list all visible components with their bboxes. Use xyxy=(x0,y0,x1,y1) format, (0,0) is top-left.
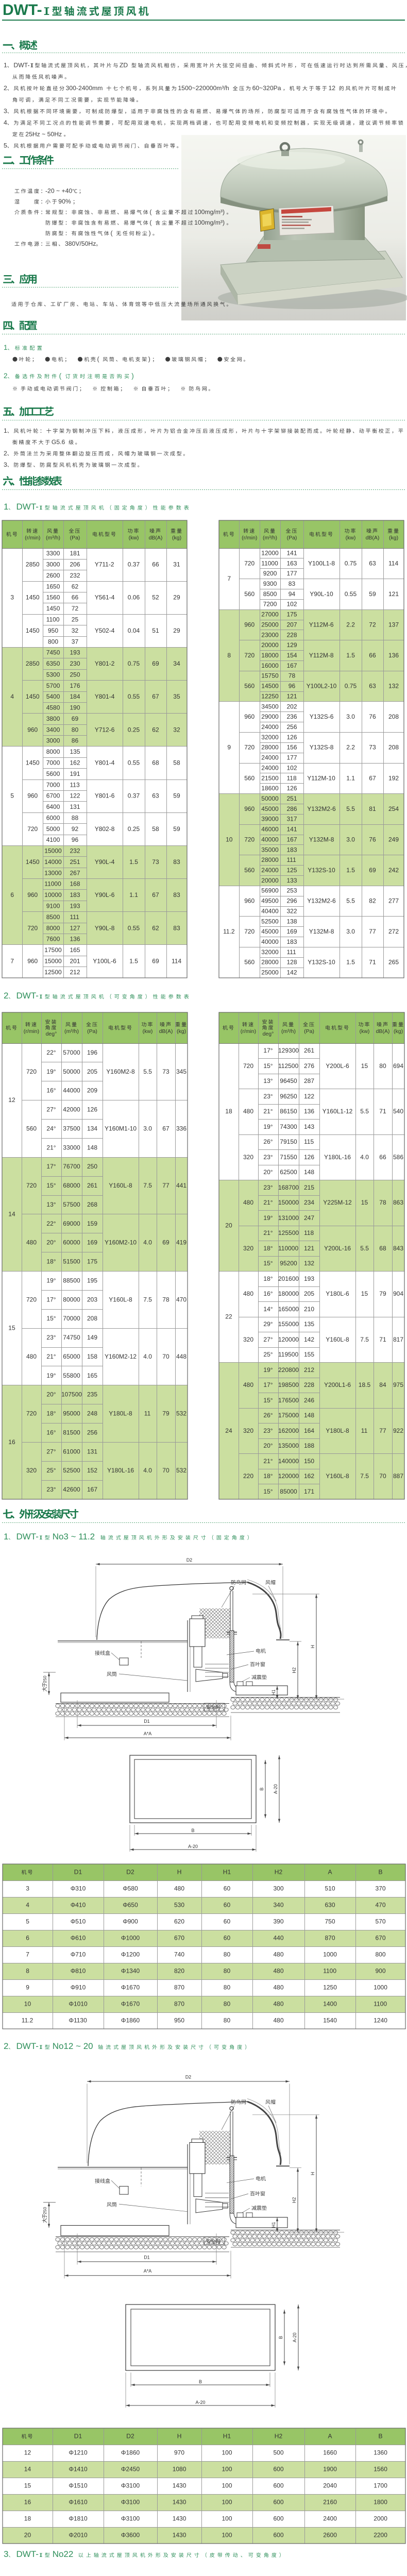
svg-text:15750: 15750 xyxy=(261,672,279,680)
svg-text:560: 560 xyxy=(244,959,255,966)
svg-text:Φ1410: Φ1410 xyxy=(69,2466,88,2473)
svg-text:1100: 1100 xyxy=(323,1968,336,1975)
svg-text:0.37: 0.37 xyxy=(128,561,140,568)
svg-text:1560: 1560 xyxy=(46,594,60,601)
svg-text:209: 209 xyxy=(87,1087,97,1094)
svg-text:Φ1670: Φ1670 xyxy=(121,1984,140,1991)
svg-text:191: 191 xyxy=(70,770,80,777)
svg-text:11.2: 11.2 xyxy=(223,928,235,935)
svg-text:21°: 21° xyxy=(263,1199,273,1206)
svg-text:2: 2 xyxy=(4,991,8,1001)
svg-text:132: 132 xyxy=(304,1260,314,1267)
svg-text:720: 720 xyxy=(243,1062,253,1070)
svg-text:3800: 3800 xyxy=(46,715,60,722)
svg-text:17°: 17° xyxy=(46,1296,56,1303)
svg-text:76700: 76700 xyxy=(63,1163,80,1170)
svg-text:45000: 45000 xyxy=(261,928,279,935)
svg-text:5400: 5400 xyxy=(46,693,60,700)
svg-text:7600: 7600 xyxy=(46,936,60,943)
svg-text:69: 69 xyxy=(152,957,159,964)
svg-text:71: 71 xyxy=(369,959,376,966)
svg-text:5.5: 5.5 xyxy=(360,1108,369,1115)
svg-text:720: 720 xyxy=(26,1068,37,1075)
svg-text:248: 248 xyxy=(87,1410,97,1417)
svg-text:4.0: 4.0 xyxy=(360,1154,369,1161)
svg-text:H2: H2 xyxy=(292,2197,297,2204)
svg-text:80: 80 xyxy=(379,1062,386,1070)
svg-text:208: 208 xyxy=(87,1315,97,1322)
svg-text:70: 70 xyxy=(162,1353,169,1360)
svg-text:62: 62 xyxy=(152,924,159,931)
svg-text:Y200L-6: Y200L-6 xyxy=(326,1062,349,1070)
svg-text:448: 448 xyxy=(176,1353,186,1360)
svg-text:126: 126 xyxy=(304,1154,314,1161)
svg-text:10000: 10000 xyxy=(44,891,62,899)
svg-text:268: 268 xyxy=(87,1201,97,1208)
svg-text:1450: 1450 xyxy=(46,605,60,612)
svg-text:67: 67 xyxy=(162,1125,169,1132)
svg-text:212: 212 xyxy=(70,969,80,976)
svg-text:419: 419 xyxy=(176,1239,186,1246)
svg-text:1660: 1660 xyxy=(323,2449,337,2456)
svg-text:4100: 4100 xyxy=(46,836,60,843)
svg-text:70000: 70000 xyxy=(63,1315,80,1322)
svg-text:131: 131 xyxy=(87,1448,97,1455)
svg-text:12250: 12250 xyxy=(261,692,279,700)
svg-text:207: 207 xyxy=(287,621,297,628)
svg-text:50000: 50000 xyxy=(63,1068,80,1075)
svg-text:180000: 180000 xyxy=(278,1290,299,1297)
svg-text:5300: 5300 xyxy=(46,671,60,678)
svg-text:B: B xyxy=(259,1787,264,1790)
svg-text:80: 80 xyxy=(224,1984,231,1991)
svg-text:Y502-4: Y502-4 xyxy=(95,627,115,634)
svg-text:167: 167 xyxy=(287,662,297,669)
svg-text:102: 102 xyxy=(287,601,297,608)
svg-text:235: 235 xyxy=(87,1391,97,1398)
svg-text:17°: 17° xyxy=(46,1163,56,1170)
svg-text:720: 720 xyxy=(244,928,255,935)
svg-text:540: 540 xyxy=(393,1108,403,1115)
svg-text:70: 70 xyxy=(379,1472,386,1480)
svg-text:115: 115 xyxy=(304,1138,314,1145)
svg-text:3.0: 3.0 xyxy=(143,1125,152,1132)
svg-text:287: 287 xyxy=(304,1077,314,1084)
svg-text:Y180L-16: Y180L-16 xyxy=(324,1154,351,1161)
svg-text:16: 16 xyxy=(24,2499,31,2506)
svg-text:340: 340 xyxy=(274,1902,284,1909)
svg-text:125500: 125500 xyxy=(278,1229,299,1236)
svg-text:0.04: 0.04 xyxy=(128,627,140,634)
svg-text:83: 83 xyxy=(173,924,180,931)
svg-text:78: 78 xyxy=(289,672,296,680)
svg-text:80: 80 xyxy=(224,1968,231,1975)
svg-text:234: 234 xyxy=(304,1199,314,1206)
svg-text:76: 76 xyxy=(369,713,376,720)
svg-text:162: 162 xyxy=(70,759,80,767)
svg-text:Y132M-8: Y132M-8 xyxy=(309,836,334,843)
svg-text:Y160M2-12: Y160M2-12 xyxy=(105,1353,137,1360)
svg-text:Y132S-6: Y132S-6 xyxy=(310,713,334,720)
svg-text:20°: 20° xyxy=(46,1239,56,1246)
svg-text:18°: 18° xyxy=(263,1472,273,1480)
svg-text:92: 92 xyxy=(72,825,79,833)
svg-text:1800: 1800 xyxy=(374,2499,387,2506)
svg-text:148: 148 xyxy=(304,1168,314,1176)
svg-text:Y112M-8: Y112M-8 xyxy=(309,652,334,659)
svg-text:80: 80 xyxy=(224,2001,231,2008)
svg-text:128: 128 xyxy=(287,959,297,966)
svg-text:720: 720 xyxy=(26,1182,37,1189)
svg-text:Φ3600: Φ3600 xyxy=(121,2532,140,2539)
svg-text:126: 126 xyxy=(287,734,297,741)
svg-text:Φ910: Φ910 xyxy=(71,1984,86,1991)
svg-text:(r/min): (r/min) xyxy=(242,535,257,541)
svg-text:25°: 25° xyxy=(46,1467,56,1474)
svg-text:1.5: 1.5 xyxy=(346,652,355,659)
svg-text:320: 320 xyxy=(243,1336,253,1343)
svg-text:12: 12 xyxy=(329,84,336,92)
svg-text:(Pa): (Pa) xyxy=(87,1028,97,1035)
svg-text:39000: 39000 xyxy=(261,816,279,823)
svg-text:122: 122 xyxy=(304,1093,314,1100)
svg-text:Y90L-6: Y90L-6 xyxy=(95,891,115,899)
svg-text:480: 480 xyxy=(174,1885,184,1892)
svg-text:31: 31 xyxy=(173,561,180,568)
svg-text:Φ1130: Φ1130 xyxy=(69,2017,87,2024)
svg-text:720: 720 xyxy=(244,744,255,751)
svg-text:35000: 35000 xyxy=(261,846,279,853)
svg-text:125: 125 xyxy=(287,867,297,874)
svg-text:13°: 13° xyxy=(263,1077,273,1084)
svg-text:60: 60 xyxy=(224,1918,231,1925)
svg-text:820: 820 xyxy=(174,1968,184,1975)
svg-text:(r/min): (r/min) xyxy=(241,1028,256,1035)
svg-text:960: 960 xyxy=(244,621,255,628)
svg-text:480: 480 xyxy=(243,1199,253,1206)
svg-text:67: 67 xyxy=(152,891,159,899)
svg-text:18: 18 xyxy=(24,2515,31,2522)
svg-text:D2: D2 xyxy=(186,1557,193,1563)
svg-text:Φ2010: Φ2010 xyxy=(69,2532,88,2539)
svg-text:23000: 23000 xyxy=(261,631,279,638)
svg-text:0.75: 0.75 xyxy=(345,560,357,567)
svg-text:6: 6 xyxy=(10,891,14,899)
svg-text:320: 320 xyxy=(243,1154,253,1161)
svg-text:27°: 27° xyxy=(46,1106,56,1113)
svg-text:80: 80 xyxy=(72,726,79,733)
svg-text:195: 195 xyxy=(87,1277,97,1284)
svg-text:162: 162 xyxy=(304,1472,314,1480)
svg-text:11000: 11000 xyxy=(44,880,61,888)
svg-text:12: 12 xyxy=(8,1096,15,1104)
svg-text:135: 135 xyxy=(70,748,80,755)
svg-text:21°: 21° xyxy=(46,1144,56,1151)
svg-text:A-20: A-20 xyxy=(273,1784,278,1794)
svg-text:12: 12 xyxy=(24,2449,31,2456)
svg-text:201600: 201600 xyxy=(278,1275,299,1282)
svg-text:210: 210 xyxy=(304,1306,314,1313)
svg-text:100: 100 xyxy=(222,2482,232,2489)
svg-text:Φ1210: Φ1210 xyxy=(69,2449,88,2456)
svg-text:320: 320 xyxy=(26,1467,37,1474)
svg-text:Φ1610: Φ1610 xyxy=(69,2499,88,2506)
svg-text:19°: 19° xyxy=(46,1277,56,1284)
svg-text:8000: 8000 xyxy=(46,748,60,755)
svg-text:208: 208 xyxy=(388,744,399,751)
svg-text:63: 63 xyxy=(152,792,159,800)
svg-text:deg°: deg° xyxy=(263,1031,274,1037)
svg-text:23°: 23° xyxy=(263,1427,273,1434)
svg-text:Y802-8: Y802-8 xyxy=(95,825,115,833)
svg-text:65000: 65000 xyxy=(63,1353,80,1360)
svg-text:206: 206 xyxy=(70,561,80,568)
svg-text:141: 141 xyxy=(287,826,297,833)
svg-text:175: 175 xyxy=(87,1258,97,1265)
svg-text:DWT-: DWT- xyxy=(16,2549,39,2559)
svg-text:532: 532 xyxy=(176,1467,186,1474)
svg-text:251: 251 xyxy=(70,858,80,866)
svg-text:Y112M-6: Y112M-6 xyxy=(309,621,334,628)
svg-text:192: 192 xyxy=(388,774,399,782)
svg-text:22: 22 xyxy=(225,1313,232,1320)
svg-text:2.2: 2.2 xyxy=(346,744,355,751)
svg-text:228: 228 xyxy=(287,631,297,638)
svg-text:183: 183 xyxy=(70,891,80,899)
svg-text:): ) xyxy=(131,372,133,380)
svg-text:122: 122 xyxy=(70,792,80,800)
svg-text:3.0: 3.0 xyxy=(346,928,355,935)
svg-text:5.5: 5.5 xyxy=(346,897,355,905)
svg-text:167: 167 xyxy=(87,1486,97,1493)
svg-text:140000: 140000 xyxy=(278,1458,299,1465)
svg-text:960: 960 xyxy=(27,891,38,899)
svg-text:215: 215 xyxy=(304,1184,314,1191)
svg-text:Y180L-8: Y180L-8 xyxy=(109,1410,132,1417)
svg-text:H1: H1 xyxy=(271,2222,276,2228)
svg-text:129: 129 xyxy=(287,641,297,649)
svg-text:208: 208 xyxy=(388,713,399,720)
svg-text:126: 126 xyxy=(287,785,297,792)
svg-text:136: 136 xyxy=(70,936,80,943)
svg-text:246: 246 xyxy=(304,1397,314,1404)
svg-text:A-20: A-20 xyxy=(196,2400,206,2405)
svg-text:24000: 24000 xyxy=(261,723,279,731)
svg-text:Y801-6: Y801-6 xyxy=(95,792,115,800)
svg-text:177: 177 xyxy=(287,570,297,577)
svg-text:No12 ~ 20: No12 ~ 20 xyxy=(53,2041,93,2051)
svg-text:296: 296 xyxy=(287,897,297,905)
svg-text:1: 1 xyxy=(4,1532,8,1541)
svg-text:1100: 1100 xyxy=(46,616,60,623)
svg-text:25°: 25° xyxy=(263,1351,273,1358)
svg-text:532: 532 xyxy=(176,1410,186,1417)
svg-text:9200: 9200 xyxy=(263,570,277,577)
svg-text:27°: 27° xyxy=(46,1448,56,1455)
svg-text:14: 14 xyxy=(24,2466,31,2473)
svg-text:60: 60 xyxy=(224,1902,231,1909)
svg-text:18°: 18° xyxy=(46,1410,56,1417)
svg-text:B: B xyxy=(379,1869,383,1876)
svg-text:817: 817 xyxy=(393,1336,403,1343)
svg-text:42000: 42000 xyxy=(63,1106,80,1113)
svg-text:8500: 8500 xyxy=(263,590,277,598)
svg-text:H: H xyxy=(310,1645,315,1649)
svg-text:1: 1 xyxy=(4,344,8,351)
svg-text:(: ( xyxy=(111,230,113,237)
svg-text:2160: 2160 xyxy=(323,2499,337,2506)
svg-text:Φ2450: Φ2450 xyxy=(121,2466,140,2473)
svg-text:5.5: 5.5 xyxy=(346,805,355,812)
svg-text:4: 4 xyxy=(4,119,7,126)
svg-text:25000: 25000 xyxy=(261,621,279,628)
svg-text:95200: 95200 xyxy=(280,1260,297,1267)
svg-text:184: 184 xyxy=(70,693,80,700)
svg-text:480: 480 xyxy=(243,1108,253,1115)
svg-text:530: 530 xyxy=(174,1902,184,1909)
svg-text:720: 720 xyxy=(244,652,255,659)
svg-text:121: 121 xyxy=(304,1245,314,1252)
svg-text:B: B xyxy=(192,1828,195,1833)
svg-text:Y100L1-8: Y100L1-8 xyxy=(308,560,335,567)
svg-text:175000: 175000 xyxy=(278,1412,299,1419)
svg-text:560: 560 xyxy=(244,867,255,874)
svg-text:720: 720 xyxy=(244,836,255,843)
svg-text:114: 114 xyxy=(388,560,398,567)
svg-text:Y90L-4: Y90L-4 xyxy=(95,858,115,866)
svg-text:63: 63 xyxy=(369,683,376,690)
svg-text:586: 586 xyxy=(393,1154,403,1161)
svg-text:71: 71 xyxy=(379,1336,386,1343)
svg-text:67: 67 xyxy=(152,693,159,700)
svg-text:2.2: 2.2 xyxy=(346,621,355,628)
svg-text:21°: 21° xyxy=(263,1108,273,1115)
svg-text:1450: 1450 xyxy=(26,858,40,866)
svg-text:1650: 1650 xyxy=(46,583,60,590)
svg-text:(kg): (kg) xyxy=(389,535,398,541)
svg-text:15: 15 xyxy=(361,1199,368,1206)
svg-text:20000: 20000 xyxy=(261,877,279,884)
svg-text:2: 2 xyxy=(4,450,7,457)
svg-text:100: 100 xyxy=(222,2449,232,2456)
svg-text:131: 131 xyxy=(70,803,80,810)
svg-text:95000: 95000 xyxy=(63,1410,80,1417)
svg-text:32: 32 xyxy=(72,627,79,634)
svg-text:1450: 1450 xyxy=(26,759,40,767)
svg-text:78: 78 xyxy=(379,1199,386,1206)
svg-text:670: 670 xyxy=(376,1935,386,1942)
svg-text:80: 80 xyxy=(224,2017,231,2024)
svg-text:83: 83 xyxy=(289,580,296,587)
svg-text:0.25: 0.25 xyxy=(128,726,140,733)
svg-text:8: 8 xyxy=(26,1968,29,1975)
svg-text:18.5: 18.5 xyxy=(359,1381,371,1388)
svg-text:A-20: A-20 xyxy=(292,2332,297,2342)
svg-text:250: 250 xyxy=(70,671,80,678)
svg-text:320: 320 xyxy=(243,1245,253,1252)
svg-text:77: 77 xyxy=(369,928,376,935)
svg-text:960: 960 xyxy=(27,957,38,964)
svg-text:No3 ~ 11.2: No3 ~ 11.2 xyxy=(53,1532,95,1541)
svg-text:63: 63 xyxy=(369,560,376,567)
svg-text:960: 960 xyxy=(244,805,255,812)
svg-text:80000: 80000 xyxy=(63,1296,80,1303)
svg-text:Y132S-10: Y132S-10 xyxy=(308,959,335,966)
svg-text:62500: 62500 xyxy=(280,1168,297,1176)
svg-text:480: 480 xyxy=(274,1984,284,1991)
svg-text:Φ310: Φ310 xyxy=(71,1885,86,1892)
svg-text:164: 164 xyxy=(304,1427,314,1434)
svg-text:A: A xyxy=(328,1869,332,1876)
svg-text:72: 72 xyxy=(72,605,79,612)
svg-text:57000: 57000 xyxy=(63,1049,80,1056)
svg-text:H2: H2 xyxy=(275,1869,283,1876)
svg-text:72: 72 xyxy=(369,621,376,628)
svg-text:720: 720 xyxy=(27,924,38,931)
svg-text:22°: 22° xyxy=(46,1049,56,1056)
svg-text:15°: 15° xyxy=(46,1315,56,1322)
svg-text:86150: 86150 xyxy=(280,1108,297,1115)
svg-text:17500: 17500 xyxy=(44,946,62,954)
svg-text:15°: 15° xyxy=(263,1488,273,1495)
svg-text:6000: 6000 xyxy=(46,814,60,821)
svg-text:15: 15 xyxy=(361,1290,368,1297)
svg-text:960: 960 xyxy=(27,792,38,800)
svg-text:165000: 165000 xyxy=(278,1306,299,1313)
svg-text:198500: 198500 xyxy=(278,1381,299,1388)
svg-text:): ) xyxy=(149,230,151,237)
svg-text:155000: 155000 xyxy=(278,1320,299,1328)
svg-text:950: 950 xyxy=(48,627,58,634)
svg-text:62: 62 xyxy=(72,583,79,590)
svg-text:59: 59 xyxy=(173,792,180,800)
svg-text:600: 600 xyxy=(274,2499,284,2506)
svg-text:11.2: 11.2 xyxy=(22,2017,33,2024)
svg-text:1560: 1560 xyxy=(374,2466,387,2473)
svg-text:4: 4 xyxy=(26,1902,29,1909)
svg-text:25000: 25000 xyxy=(261,969,279,976)
svg-text:7000: 7000 xyxy=(46,781,60,788)
svg-text:18000: 18000 xyxy=(261,652,279,659)
svg-text:B: B xyxy=(199,2379,202,2384)
svg-text:12000: 12000 xyxy=(261,549,279,556)
svg-text:121: 121 xyxy=(388,590,399,598)
svg-text:190: 190 xyxy=(70,704,80,711)
svg-text:14°: 14° xyxy=(263,1306,273,1313)
svg-text:D2: D2 xyxy=(126,1869,134,1876)
svg-text:76: 76 xyxy=(369,836,376,843)
svg-text:1700: 1700 xyxy=(374,2482,387,2489)
svg-text:196: 196 xyxy=(87,1049,97,1056)
svg-text:83: 83 xyxy=(173,891,180,899)
svg-text:158: 158 xyxy=(87,1353,97,1360)
svg-text:141: 141 xyxy=(287,549,297,556)
svg-text:113: 113 xyxy=(70,781,80,788)
svg-text:66: 66 xyxy=(152,561,159,568)
svg-text:19°: 19° xyxy=(263,1214,273,1222)
svg-text:1430: 1430 xyxy=(173,2482,186,2489)
svg-text:202: 202 xyxy=(287,703,297,710)
svg-text:3.0: 3.0 xyxy=(346,836,355,843)
svg-text:3: 3 xyxy=(26,1885,29,1892)
svg-text:(m³/h): (m³/h) xyxy=(46,535,60,541)
svg-text:35: 35 xyxy=(173,693,180,700)
svg-text:56900: 56900 xyxy=(261,887,279,894)
svg-text:114: 114 xyxy=(172,957,181,964)
svg-text:800: 800 xyxy=(48,638,58,645)
svg-text:Φ410: Φ410 xyxy=(71,1902,86,1909)
svg-text:D2: D2 xyxy=(185,2074,192,2079)
